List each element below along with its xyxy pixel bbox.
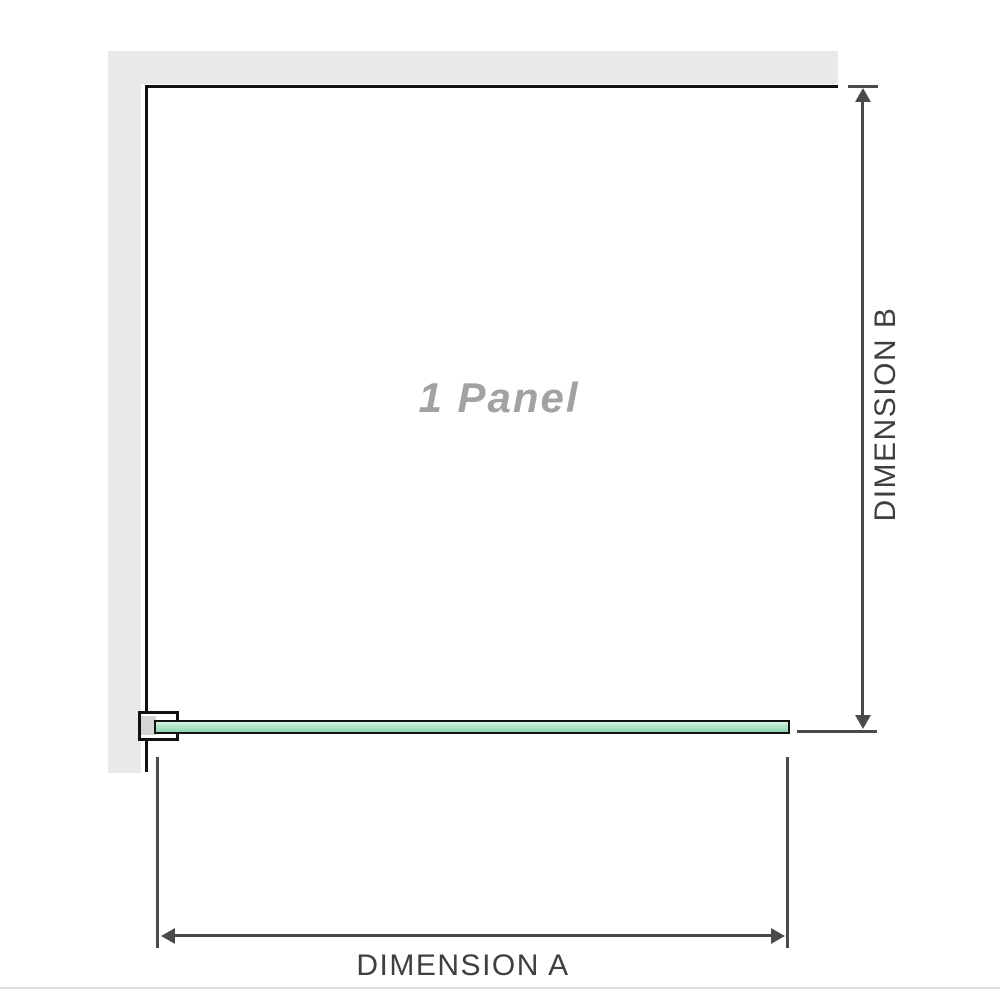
panel-count-label: 1 Panel — [339, 368, 659, 428]
shower-panel-diagram: 1 Panel DIMENSION B DIMENSION A — [0, 0, 1000, 1000]
wall-top — [108, 51, 838, 84]
arrow-up-icon — [855, 88, 871, 102]
dimension-a-line — [168, 934, 778, 937]
glass-panel-bar — [154, 720, 790, 734]
dimension-b-label: DIMENSION B — [868, 114, 904, 714]
arrow-left-icon — [161, 928, 175, 944]
dimension-b-line — [861, 96, 864, 720]
wall-left-inner-edge — [145, 85, 148, 772]
bottom-divider — [0, 987, 1000, 989]
dimension-a-right-extension-line — [786, 757, 789, 948]
dimension-a-label: DIMENSION A — [163, 948, 763, 984]
wall-left — [108, 51, 141, 773]
dimension-a-left-extension-line — [156, 757, 159, 948]
wall-top-inner-edge — [145, 85, 838, 88]
dimension-b-bottom-tick — [797, 730, 877, 733]
arrow-down-icon — [855, 715, 871, 729]
arrow-right-icon — [771, 928, 785, 944]
